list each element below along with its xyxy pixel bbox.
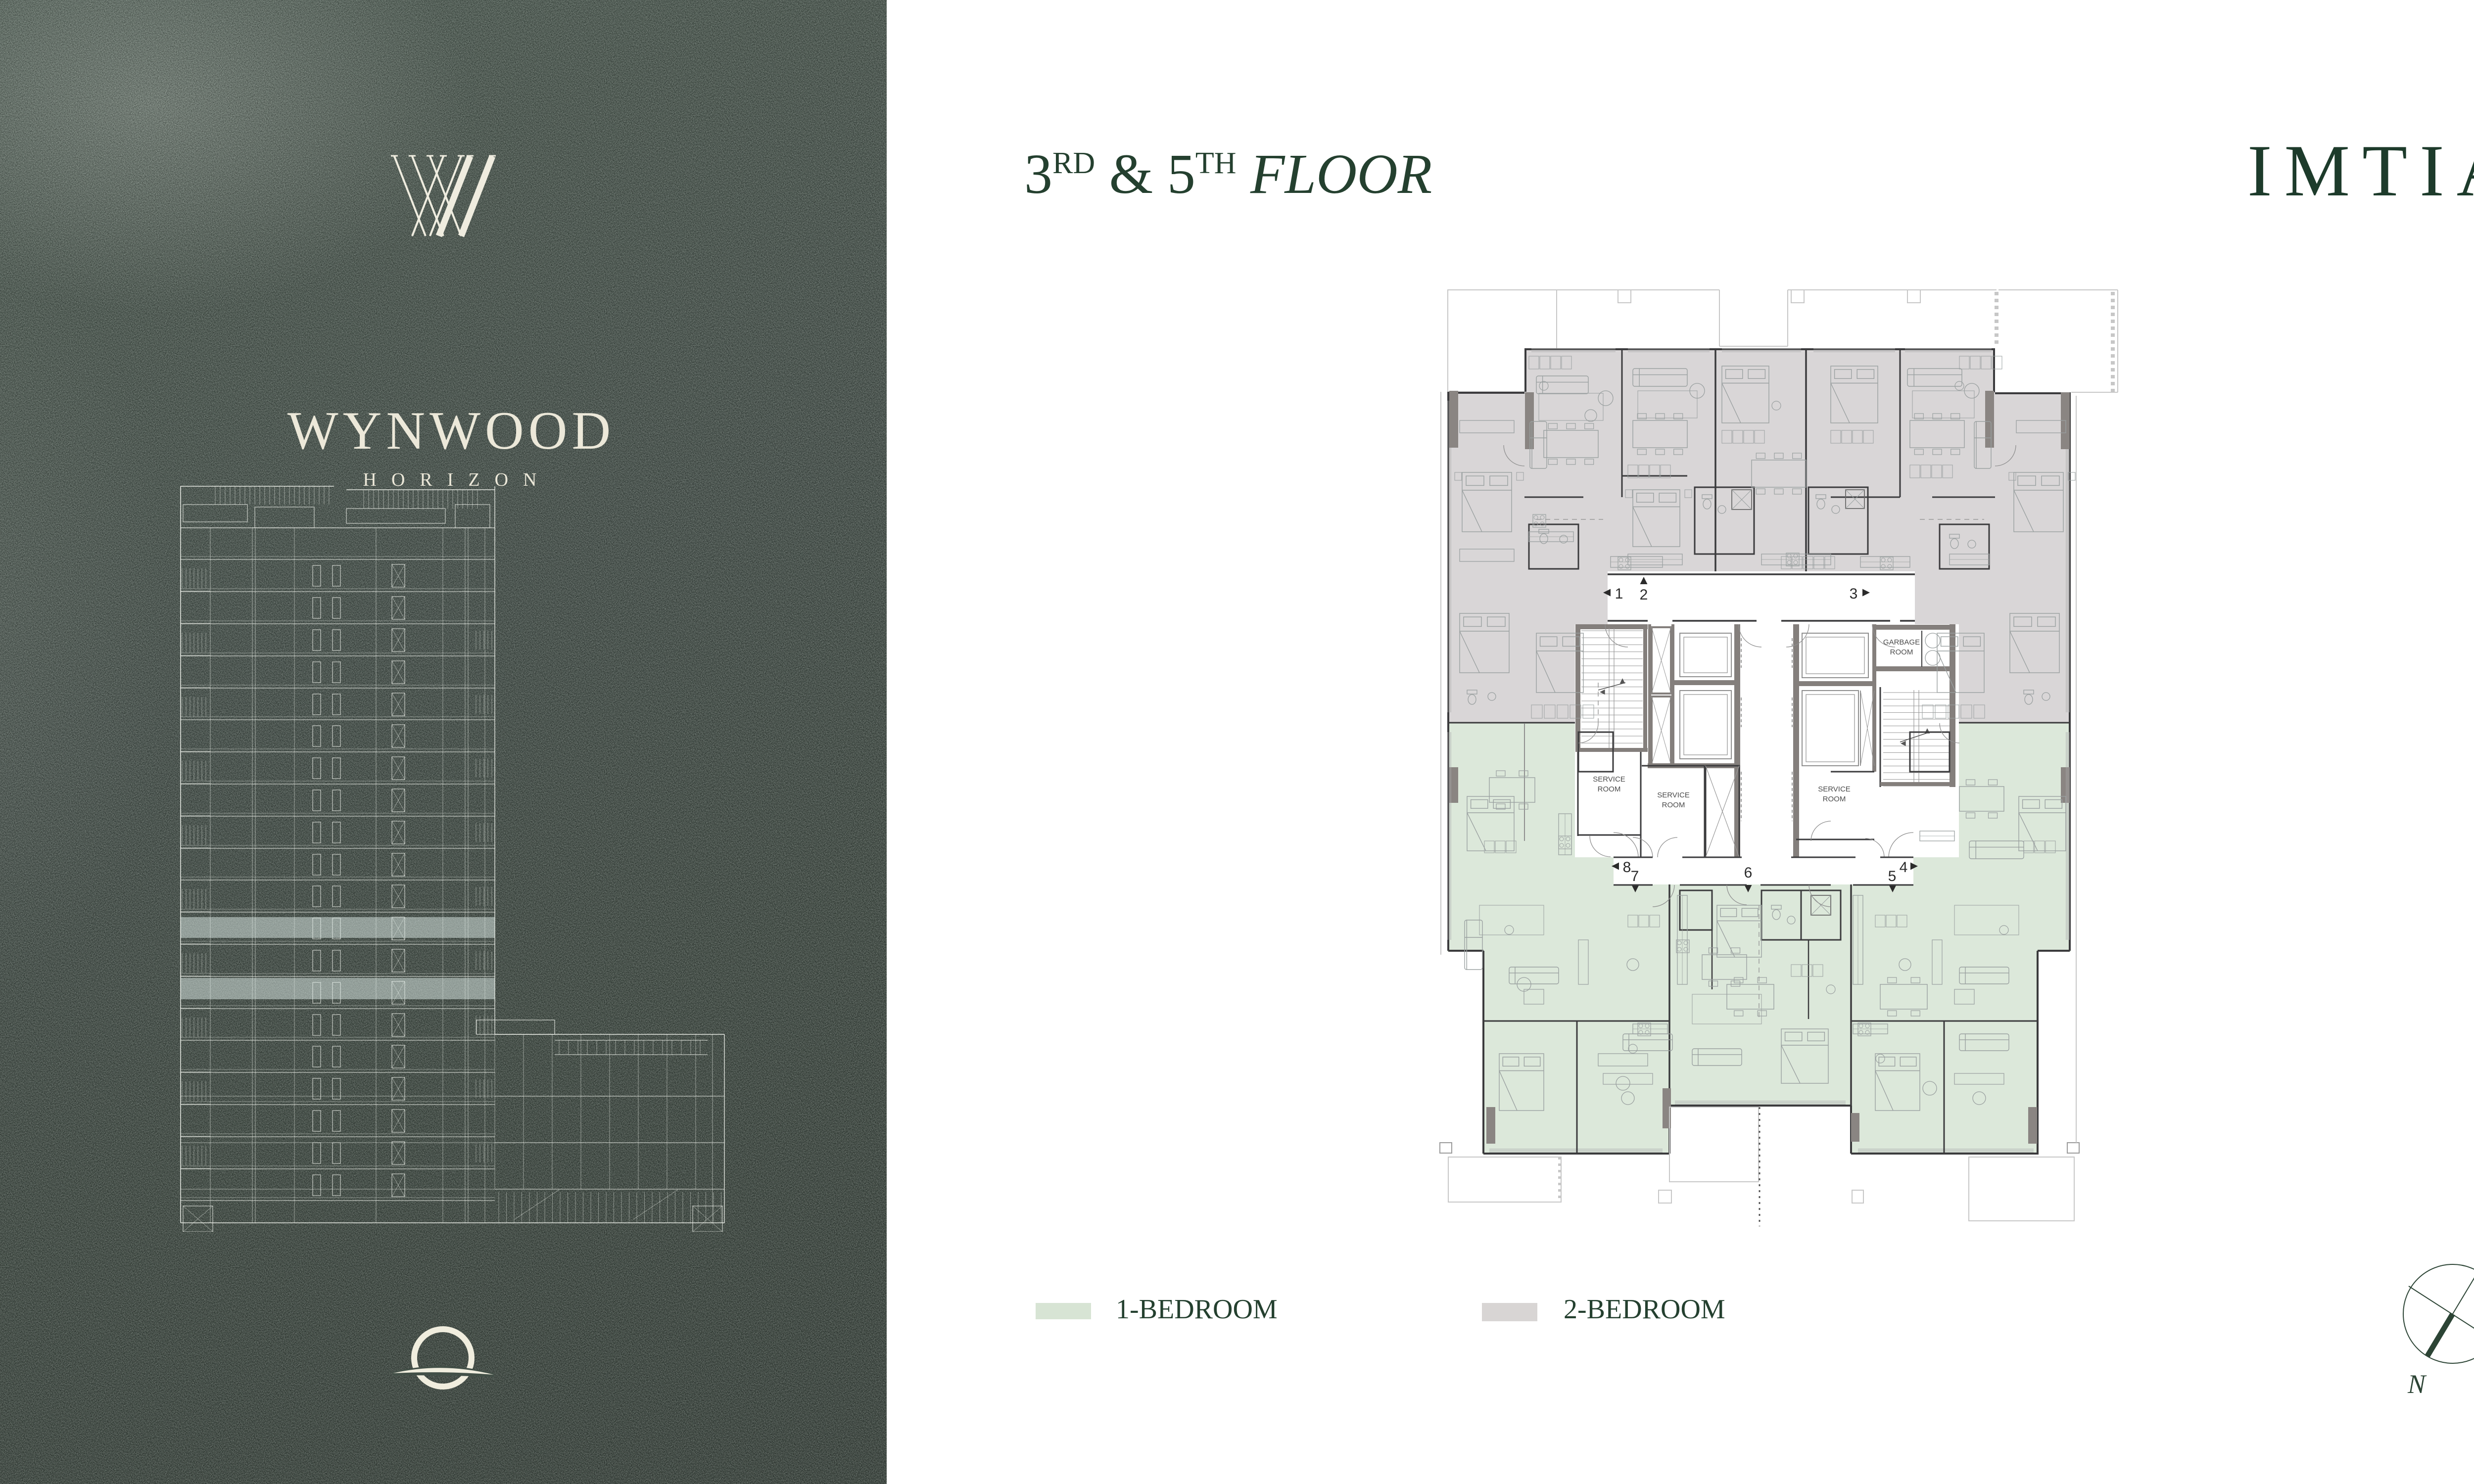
svg-text:8: 8: [1623, 859, 1631, 876]
svg-text:2: 2: [1640, 587, 1648, 603]
svg-text:ROOM: ROOM: [1823, 795, 1846, 803]
svg-text:5: 5: [1888, 868, 1897, 884]
svg-text:4: 4: [1900, 859, 1908, 876]
svg-text:ROOM: ROOM: [1662, 801, 1685, 809]
svg-text:1: 1: [1615, 586, 1623, 602]
svg-text:SERVICE: SERVICE: [1657, 791, 1690, 799]
svg-text:GARBAGE: GARBAGE: [1883, 638, 1920, 647]
svg-text:ROOM: ROOM: [1598, 785, 1621, 793]
svg-text:ROOM: ROOM: [1890, 648, 1913, 656]
svg-text:7: 7: [1631, 868, 1639, 884]
svg-text:N: N: [2407, 1369, 2427, 1399]
svg-text:3: 3: [1850, 586, 1858, 602]
svg-text:SERVICE: SERVICE: [1818, 785, 1851, 793]
svg-text:6: 6: [1744, 865, 1753, 881]
svg-text:SERVICE: SERVICE: [1593, 775, 1625, 784]
